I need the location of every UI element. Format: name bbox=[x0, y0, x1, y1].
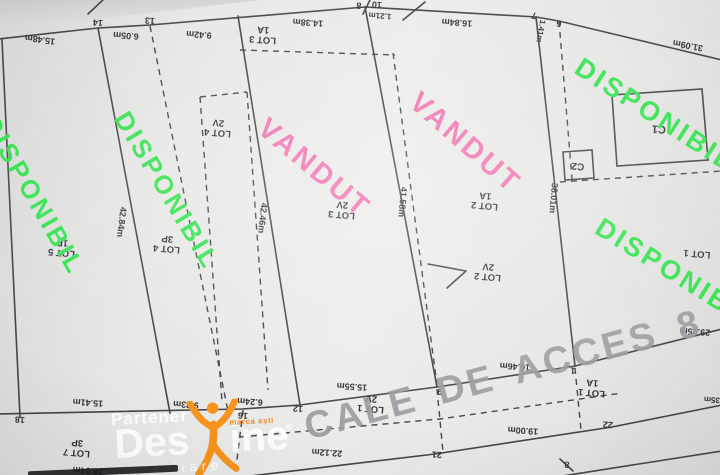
survey-point-label: 6 bbox=[556, 18, 562, 28]
measurement-label: 42.46m bbox=[256, 202, 269, 233]
measurement-label: 19.00m bbox=[507, 424, 538, 436]
survey-point-label: 10 bbox=[372, 0, 383, 9]
road-center-dashed bbox=[240, 393, 622, 437]
measurement-label: 9.42m bbox=[186, 28, 212, 39]
measurement-label: 6.24m bbox=[237, 395, 263, 406]
top-boundary bbox=[0, 7, 720, 60]
lot2-2v-leader bbox=[428, 264, 466, 288]
lot-label: LOT 32V bbox=[328, 198, 357, 220]
lot-label: LOT 21A bbox=[471, 189, 500, 211]
survey-point-label: 18 bbox=[15, 414, 26, 424]
measurement-label: 22.12m bbox=[311, 446, 342, 458]
cadastral-plan-photo: 15.48m6.05m9.42m14.38m1.21m16.84m31.09m1… bbox=[0, 0, 720, 475]
lot-label: LOT 1 bbox=[683, 247, 711, 259]
survey-point-label: 12 bbox=[293, 403, 304, 413]
measurement-label: 15.41m bbox=[72, 396, 103, 408]
lot3-left-boundary bbox=[238, 16, 300, 405]
survey-point-label: 16 bbox=[238, 410, 249, 420]
lot-label: LOT 73P bbox=[63, 436, 92, 458]
lot-label: LOT 51P bbox=[48, 236, 77, 258]
lot-label: LOT 31A bbox=[249, 23, 277, 45]
measurement-label: 29.35m bbox=[679, 325, 710, 337]
measurement-label: 16.84m bbox=[441, 16, 472, 28]
building-label: C1 bbox=[652, 122, 667, 134]
lot1-dashed-left bbox=[559, 21, 572, 179]
survey-point-label: 13 bbox=[145, 15, 156, 25]
survey-point-label: 22 bbox=[603, 419, 614, 429]
measurement-label: 15.55m bbox=[336, 380, 367, 392]
lot-label: LOT 12V bbox=[357, 392, 386, 414]
road-tie-point9 bbox=[437, 389, 443, 452]
lot-label: LOT 22V bbox=[474, 260, 503, 282]
survey-point-label: 7 bbox=[531, 10, 537, 20]
survey-point-label: 14 bbox=[93, 17, 104, 27]
measurement-label: 6.05m bbox=[113, 29, 139, 40]
left-boundary bbox=[2, 40, 20, 417]
lot-label: LOT 43P bbox=[153, 232, 182, 254]
survey-point-label: 9 bbox=[437, 386, 443, 396]
measurement-label: 35m bbox=[704, 394, 720, 403]
road-lower-edge bbox=[556, 451, 720, 475]
measurement-label: 41.58m bbox=[396, 186, 408, 217]
survey-tick bbox=[88, 0, 106, 14]
lot-label: LOT 42V bbox=[204, 116, 233, 138]
measurement-label: 16.46m bbox=[499, 360, 530, 372]
lot4-dashed-boundary bbox=[150, 26, 228, 411]
road-bottom-edge bbox=[234, 405, 720, 475]
measurement-label: 1.21m bbox=[368, 10, 391, 20]
measurement-label: 14.38m bbox=[292, 16, 323, 28]
lot2-dashed-boundary bbox=[393, 53, 437, 385]
lot3-1a-strip-dashed bbox=[240, 50, 395, 55]
survey-point-label: 1 bbox=[570, 365, 576, 375]
measurement-label: 38.01m bbox=[547, 182, 559, 213]
lot1-dashed-strip bbox=[560, 171, 720, 182]
lot5-lot4-boundary bbox=[98, 28, 170, 413]
survey-point-label: 8 bbox=[564, 459, 570, 469]
lot4-2v-dashed-top bbox=[200, 92, 247, 97]
lot4-2v-dashed-left bbox=[200, 97, 222, 402]
measurement-label: 9.23m bbox=[173, 398, 199, 409]
survey-point-label: 21 bbox=[432, 449, 443, 459]
lot-label: LOT 11A bbox=[578, 376, 607, 398]
building-label: C2 bbox=[571, 159, 584, 170]
survey-point-label: 8 bbox=[356, 0, 362, 10]
